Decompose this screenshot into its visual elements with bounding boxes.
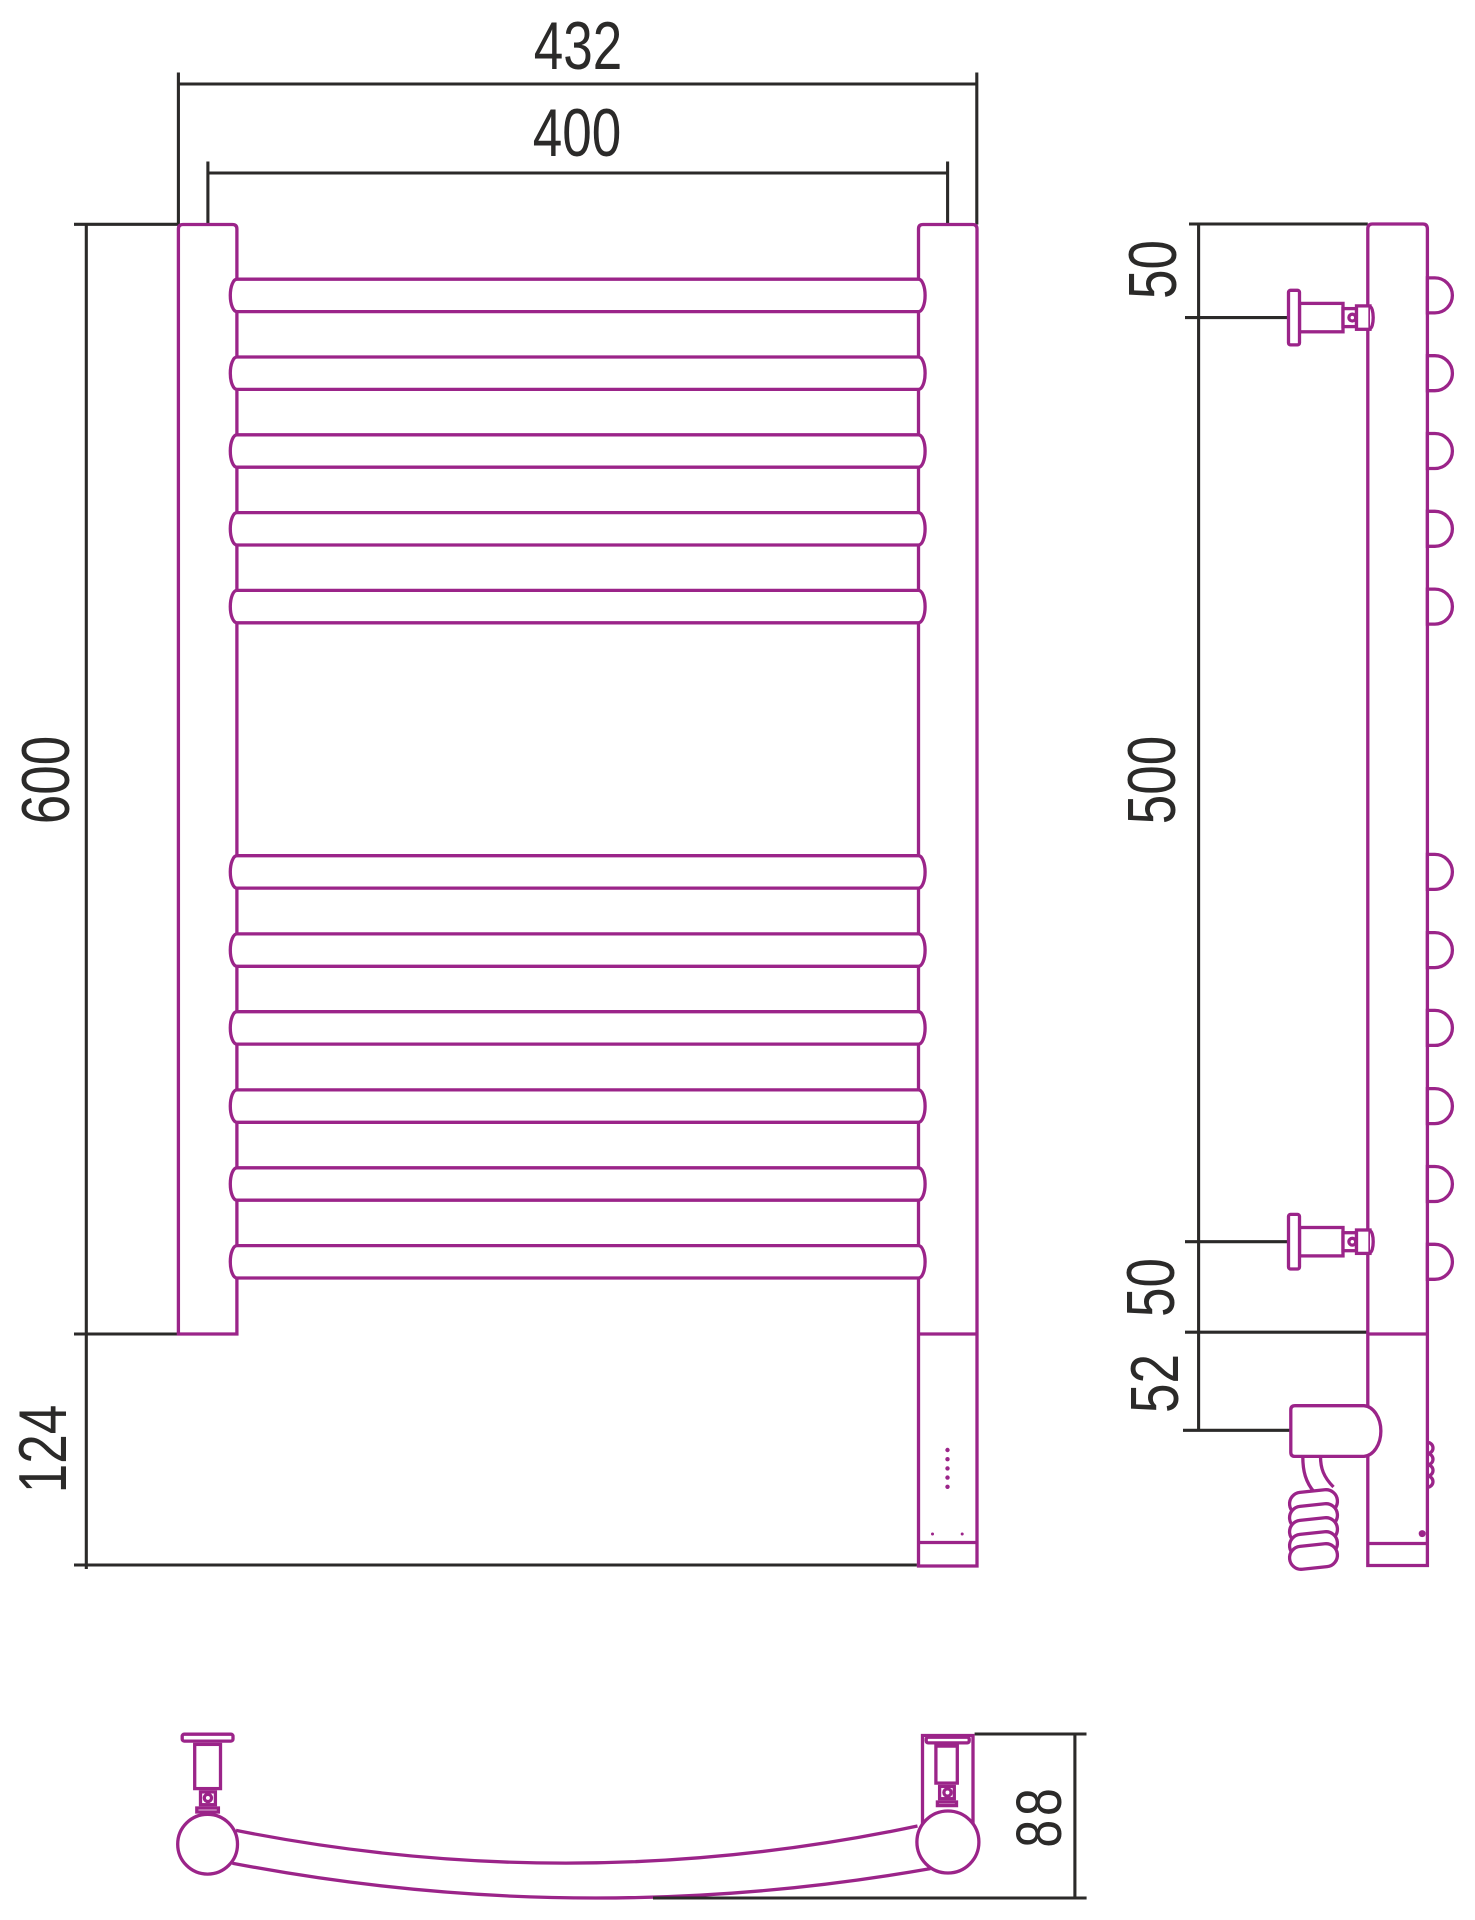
svg-text:88: 88 [1004,1784,1075,1847]
svg-text:400: 400 [533,95,621,171]
svg-text:432: 432 [534,8,622,84]
svg-text:50: 50 [1113,1258,1189,1317]
svg-text:600: 600 [8,736,84,824]
svg-text:500: 500 [1114,736,1190,824]
svg-text:50: 50 [1115,240,1191,299]
svg-text:52: 52 [1117,1354,1193,1413]
svg-text:124: 124 [5,1405,81,1493]
